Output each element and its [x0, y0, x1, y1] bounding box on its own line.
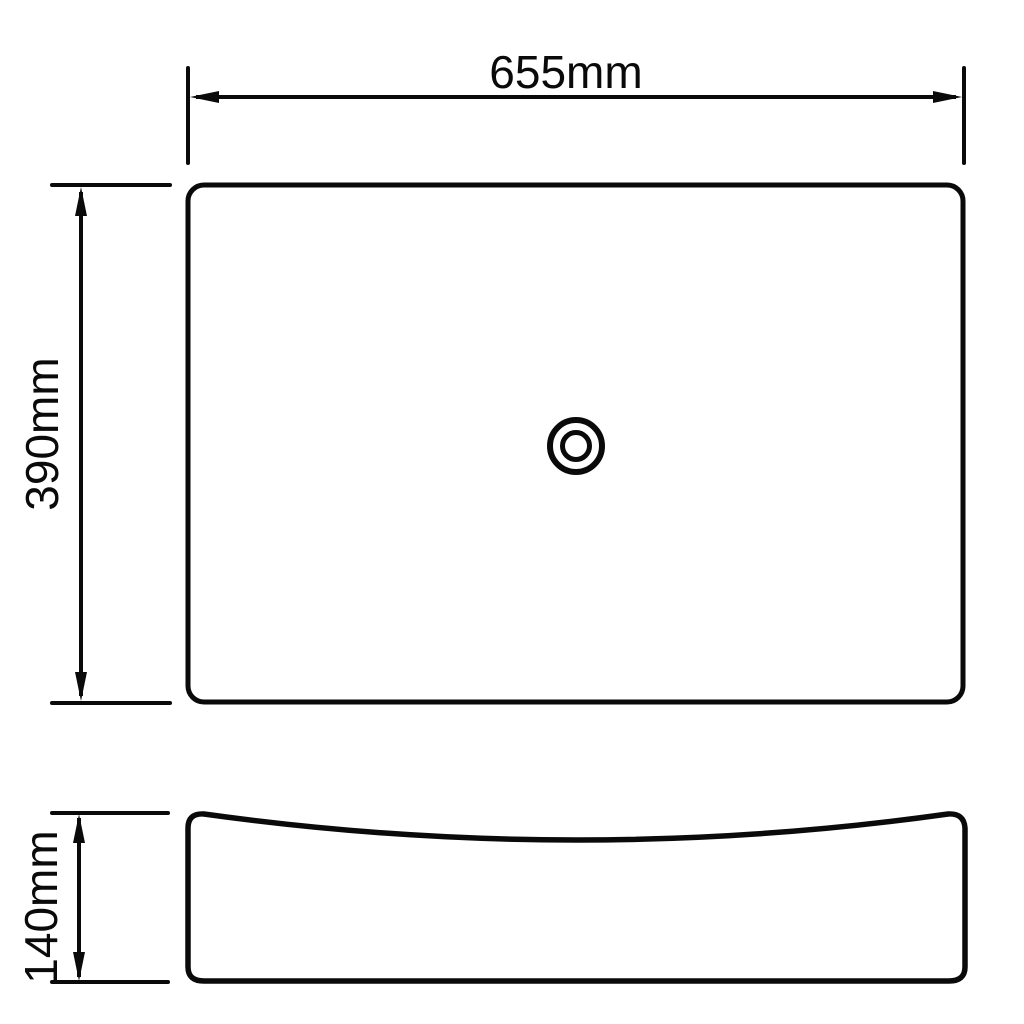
- basin-plan-outline: [188, 185, 963, 702]
- basin-dimension-drawing: 655mm 390mm 140mm: [0, 0, 1024, 1024]
- height-arrowhead-top: [73, 814, 85, 843]
- depth-arrowhead-bottom: [75, 672, 87, 701]
- width-arrowhead-left: [190, 91, 219, 103]
- depth-dimension-label: 390mm: [16, 357, 68, 510]
- dimension-width: 655mm: [188, 46, 964, 163]
- width-dimension-label: 655mm: [489, 46, 642, 98]
- height-arrowhead-bottom: [73, 952, 85, 981]
- plan-view: [188, 185, 963, 702]
- profile-view: [188, 814, 965, 981]
- drain-hole-inner-circle: [563, 433, 590, 460]
- height-dimension-label: 140mm: [15, 830, 67, 983]
- width-arrowhead-right: [933, 91, 962, 103]
- dimension-depth: 390mm: [16, 185, 170, 703]
- basin-profile-outline: [188, 814, 965, 981]
- drain-hole-outer-circle: [550, 420, 602, 472]
- depth-arrowhead-top: [75, 187, 87, 216]
- drawing-canvas: 655mm 390mm 140mm: [0, 0, 1024, 1024]
- dimension-height: 140mm: [15, 813, 168, 984]
